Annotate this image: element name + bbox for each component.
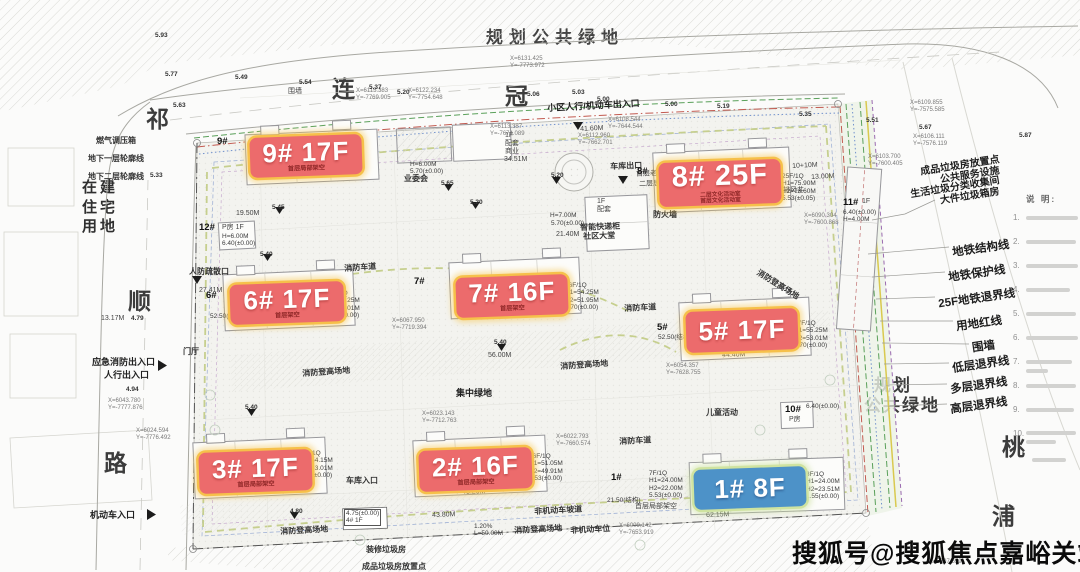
children-play: 儿童活动 [706, 408, 738, 417]
building-label-9: 9# 17F 首层局部架空 [249, 134, 362, 178]
hoist-5: 消防登高场地 [755, 268, 801, 301]
spec-b2: 16F/1Q H1=51.05M H2=49.91M 5.53(±0.00) [529, 453, 563, 482]
elev-22: 5.40 [260, 251, 273, 258]
dim-1317: 13.17M [101, 315, 124, 323]
renfang-exit: 人防疏散口 [189, 267, 229, 276]
elev-9: 5.00 [597, 96, 610, 103]
num-5: 5# [657, 323, 668, 334]
coord-7: X=6109.855 Y=-7575.585 [910, 100, 945, 113]
underground-l1: 地下一层轮廓线 [88, 154, 144, 163]
num-7: 7# [414, 277, 425, 288]
spec-b5: 17F/1Q H1=55.25M H2=53.01M 5.70(±0.00) [794, 320, 828, 349]
coord-12: X=6024.594 Y=-7776.492 [136, 428, 171, 441]
spec-b1w: 7F/1Q H1=24.00M H2=22.00M 5.53(±0.00) [649, 470, 683, 499]
coord-8: X=6106.111 Y=-7576.119 [913, 134, 947, 147]
deco-waste: 装修垃圾房 [366, 545, 406, 554]
elev-15: 5.87 [1019, 132, 1032, 139]
firewall: 防火墙 [653, 210, 677, 219]
underground-l2: 地下二层轮廓线 [88, 172, 144, 181]
dim-1010: 10+10M [792, 162, 818, 171]
dim-5600: 56.00M [488, 352, 511, 360]
coord-3: X=6122.234 Y=-7754.648 [408, 88, 443, 101]
emergency-exit: 应急消防出入口 [92, 357, 155, 367]
building-2-subtext: 首层局部架空 [457, 479, 494, 487]
coord-4: X=6113.387 Y=-7674.089 [490, 124, 525, 137]
coord-10: X=6090.304 Y=-7600.868 [804, 213, 839, 226]
podium-1f: 1F 配套 [597, 198, 611, 214]
coord-11: X=6043.780 Y=-7777.876 [108, 398, 143, 411]
building-label-3: 3# 17F 首层局部架空 [198, 449, 312, 494]
building-9-text: 9# 17F [262, 138, 350, 167]
coord-15: X=6009.142 Y=-7653.919 [619, 523, 654, 536]
entry-top: 小区人行/机动车出入口 [547, 98, 640, 113]
elev-26: 4.79 [131, 315, 144, 322]
elev-14: 5.67 [919, 124, 932, 131]
elev-19: 5.65 [441, 180, 454, 187]
elev-17: 5.33 [150, 172, 163, 179]
central-green: 集中绿地 [456, 388, 492, 398]
lobby-hall: 门厅 [183, 347, 199, 356]
building-label-1: 1# 8F [693, 466, 806, 510]
coord-14: X=6022.793 Y=-7660.574 [556, 434, 591, 447]
building-6-text: 6# 17F [243, 285, 331, 314]
svc-570: 5.70(±0.00) [551, 220, 584, 227]
elev-4: 5.54 [299, 79, 312, 86]
site-plan-image: 燃气调压箱地下一层轮廓线地下二层轮廓线围墙小区人行/机动车出入口车库出口业委会1… [0, 0, 1080, 572]
elev-20: 5.20 [470, 199, 483, 206]
dim-2140: 21.40M [556, 231, 579, 239]
coord-17: X=6067.950 Y=-7719.394 [392, 318, 427, 331]
num-9: 9# [217, 137, 228, 148]
coord-1: X=6131.425 Y=-7773.972 [510, 56, 545, 69]
elev-6: 5.20 [397, 89, 410, 96]
waste-bottom: 成品垃圾房放置点 [362, 562, 426, 571]
num-10: 10# [785, 405, 801, 416]
note-number-10: 10. [1013, 429, 1024, 438]
hoist-4: 消防登高场地 [514, 523, 562, 535]
elev-23: 5.40 [245, 404, 258, 411]
motor-entry: 机动车入口 [90, 510, 135, 520]
elev-12: 5.35 [799, 111, 812, 118]
spec-b8: 25F/1Q H1=75.90M H2=73.60M 5.53(±0.05) [782, 173, 816, 202]
elev-27: 4.80 [290, 508, 303, 515]
note-number-2: 2. [1013, 237, 1020, 246]
community-lobby: 社区大堂 [583, 231, 615, 241]
building-label-2: 2# 16F 首层局部架空 [418, 447, 532, 492]
note-number-3: 3. [1013, 261, 1020, 270]
elev-18: 5.20 [551, 172, 564, 179]
firelane-3: 消防车道 [619, 435, 651, 446]
building-3-subtext: 首层局部架空 [237, 481, 274, 489]
dim-3451: 34.51M [504, 156, 527, 164]
ped-exit: 人行出入口 [104, 370, 149, 380]
coord-5: X=6112.960 Y=-7662.701 [578, 133, 613, 146]
note-number-1: 1. [1013, 213, 1020, 222]
building-7-subtext: 首层架空 [500, 306, 525, 314]
arch-1f: 首层局部架空 [635, 503, 677, 511]
building-label-6: 6# 17F 首层架空 [229, 281, 344, 325]
elev-5: 5.37 [369, 84, 382, 91]
building-label-5: 5# 17F [685, 308, 798, 353]
dim-2741: 27.41M [199, 287, 222, 295]
elev-21: 5.45 [272, 204, 285, 211]
num-4: 4.75(±0.00) 4# 1F [344, 509, 381, 526]
hoist-1: 消防登高场地 [302, 366, 351, 379]
num-12: 12# [199, 223, 215, 234]
firelane-2: 消防车道 [624, 302, 656, 313]
p-room-12: P房 1F [222, 224, 244, 232]
note-number-6: 6. [1013, 333, 1020, 342]
building-label-7: 7# 16F 首层架空 [455, 274, 568, 318]
elev-7: 5.06 [527, 91, 540, 98]
spec-10: 6.40(±0.00) [806, 403, 839, 410]
firelane-1: 消防车道 [344, 262, 377, 273]
legend-wall: 围墙 [971, 336, 996, 355]
building-8-text: 8# 25F [671, 160, 768, 192]
building-9-subtext: 首层局部架空 [288, 165, 325, 173]
spec-11: 6.40(±0.00) H=4.00M [843, 209, 876, 224]
gas-box: 燃气调压箱 [96, 136, 136, 145]
nonmotor-ramp: 非机动车坡道 [534, 504, 582, 516]
note-number-5: 5. [1013, 309, 1020, 318]
coord-13: X=6023.143 Y=-7712.763 [422, 411, 457, 424]
elev-11: 5.19 [717, 103, 730, 110]
nonmotor-park: 非机动车位 [570, 524, 610, 535]
dim-4440: 44.40M [722, 351, 746, 360]
dim-6215: 62.15M [706, 511, 730, 520]
dim-ramp: 1.20% L=50.00M [474, 523, 503, 538]
note-number-7: 7. [1013, 357, 1020, 366]
garage-entry: 车库入口 [346, 476, 378, 485]
hoist-2: 消防登高场地 [560, 359, 609, 372]
notes-header: 说 明: [1026, 193, 1056, 205]
coord-6: X=6108.544 Y=-7644.544 [608, 117, 643, 130]
elev-1: 5.93 [155, 32, 168, 39]
hoist-3: 消防登高场地 [280, 524, 328, 536]
coord-18: X=6054.357 Y=-7628.755 [666, 363, 701, 376]
building-3-text: 3# 17F [211, 453, 299, 482]
building-6-subtext: 首层架空 [275, 313, 300, 321]
elev-24: 5.40 [494, 339, 507, 346]
note-number-8: 8. [1013, 381, 1020, 390]
building-5-text: 5# 17F [698, 315, 786, 344]
p-room-10: P房 [789, 416, 801, 424]
elev-3: 5.49 [235, 74, 248, 81]
podium-h6: H=6.00M 5.70(±0.00) [410, 161, 443, 176]
elev-10: 5.00 [665, 101, 678, 108]
spec-12: H=6.00M 6.40(±0.00) [222, 233, 255, 248]
dim-4160: 41.60M [580, 125, 604, 134]
building-1-text: 1# 8F [714, 474, 786, 502]
elev-8: 5.03 [572, 89, 585, 96]
elev-2: 5.77 [165, 71, 178, 78]
dim-1950: 19.50M [236, 210, 259, 218]
dim-4380: 43.80M [432, 511, 456, 520]
num-8: 8# [637, 167, 648, 178]
note-number-9: 9. [1013, 405, 1020, 414]
num-1: 1# [611, 473, 622, 484]
building-7-text: 7# 16F [468, 278, 556, 307]
spec-b1: 8F/1Q H1=24.00M H2=23.51M 1.55(±0.00) [806, 471, 840, 500]
building-2-text: 2# 16F [431, 451, 519, 480]
svc-h7: H=7.00M [550, 212, 577, 219]
num-11-1f: 1F [862, 198, 870, 206]
elev-25: 4.94 [126, 386, 139, 393]
sohu-watermark: 搜狐号@搜狐焦点嘉峪关站 [792, 534, 1080, 570]
spec-b7: 16F/1Q H1=54.25M H2=51.95M 5.70(±0.00) [565, 282, 599, 311]
elev-13: 5.51 [866, 117, 879, 124]
elev-16: 5.63 [173, 102, 186, 109]
building-label-8: 8# 25F 二层文化活动室 首层文化活动室 [658, 159, 781, 207]
num-11: 11# [843, 198, 858, 209]
building-8-subtext: 二层文化活动室 首层文化活动室 [700, 191, 741, 205]
wall-top: 围墙 [288, 88, 302, 96]
